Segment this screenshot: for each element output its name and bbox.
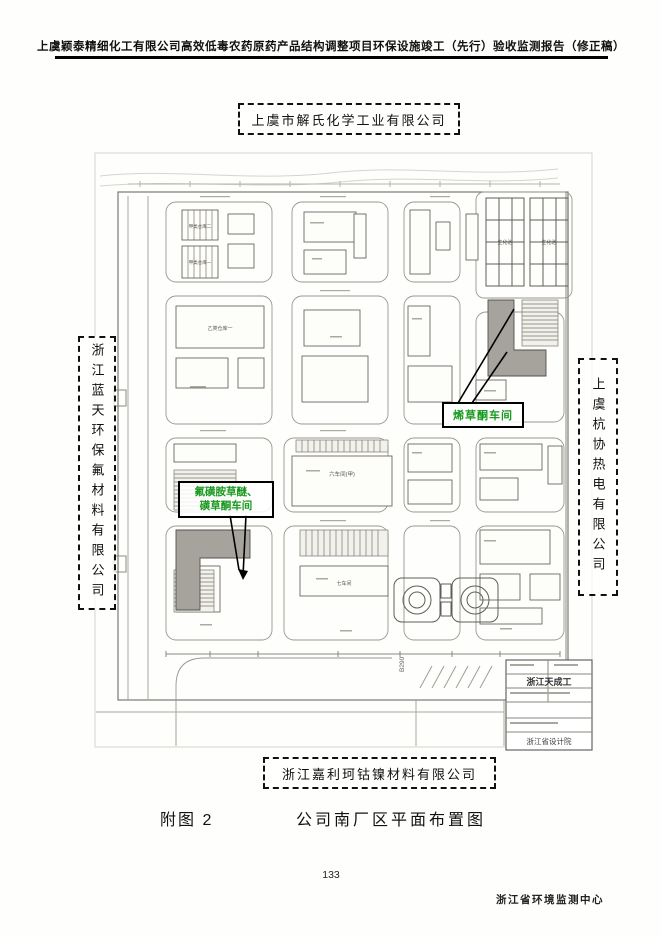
map-annotation-workshop7: 七车间	[336, 580, 351, 587]
highlight-label-right-text: 烯草酮车间	[453, 407, 513, 423]
map-annotation-warehouse-a2: 甲类仓库二	[189, 223, 212, 230]
highlight-label-left-line2: 磺草酮车间	[200, 500, 253, 514]
map-annotation-warehouse-a1: 甲类仓库一	[189, 259, 212, 266]
map-annotation-road-code: B290	[399, 656, 406, 672]
report-page: 上虞颖泰精细化工有限公司高效低毒农药原药产品结构调整项目环保设施竣工（先行）验收…	[0, 0, 662, 936]
title-block-stamp2: 浙江省设计院	[527, 736, 572, 746]
neighbor-box-left: 浙江蓝天环保氟材料有限公司	[78, 336, 116, 610]
dimension-lines	[96, 651, 560, 746]
map-annotation-workshop6: 六车间(甲)	[329, 470, 355, 478]
neighbor-right-label: 上虞杭协热电有限公司	[589, 377, 608, 577]
neighbor-left-label: 浙江蓝天环保氟材料有限公司	[88, 343, 107, 603]
highlight-label-right: 烯草酮车间	[442, 402, 524, 428]
figure-number: 附图 2	[160, 806, 213, 830]
neighbor-box-bottom: 浙江嘉利珂钴镍材料有限公司	[263, 757, 496, 789]
highlight-label-left-line1: 氟磺胺草醚、	[195, 486, 258, 500]
title-block: 浙江天成工 浙江省设计院	[506, 660, 592, 750]
neighbor-top-label: 上虞市解氏化学工业有限公司	[251, 110, 446, 129]
map-annotation-pond1: 生化池	[497, 239, 512, 246]
map-annotation-warehouse-b1: 乙类仓库一	[207, 325, 232, 332]
neighbor-bottom-label: 浙江嘉利珂钴镍材料有限公司	[282, 764, 477, 783]
figure-title: 公司南厂区平面布置图	[296, 806, 486, 830]
highlight-label-left: 氟磺胺草醚、 磺草酮车间	[178, 481, 274, 518]
page-number: 133	[0, 869, 662, 881]
title-block-stamp1: 浙江天成工	[526, 676, 571, 687]
neighbor-box-top: 上虞市解氏化学工业有限公司	[238, 103, 460, 135]
neighbor-box-right: 上虞杭协热电有限公司	[578, 358, 618, 596]
map-annotation-pond2: 生化池	[541, 239, 556, 246]
footer-organization: 浙江省环境监测中心	[496, 892, 604, 907]
